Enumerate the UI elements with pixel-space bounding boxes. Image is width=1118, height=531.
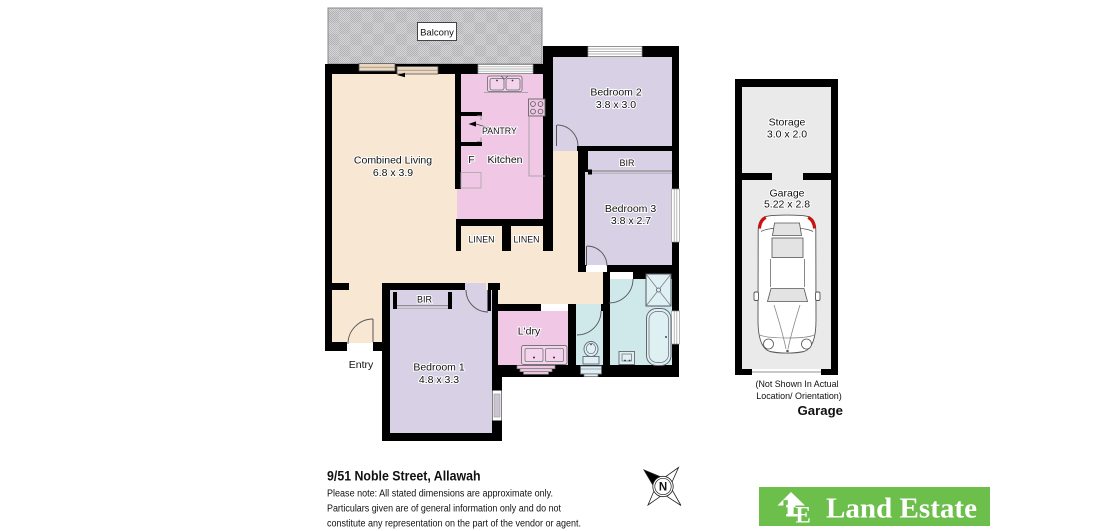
svg-text:N: N: [659, 482, 667, 494]
svg-text:E: E: [796, 503, 811, 528]
svg-text:5.22 x 2.8: 5.22 x 2.8: [764, 199, 810, 211]
svg-text:Entry: Entry: [349, 359, 374, 371]
svg-text:Bedroom 2: Bedroom 2: [590, 87, 642, 99]
svg-text:LINEN: LINEN: [469, 235, 495, 245]
svg-text:constitute any representation: constitute any representation on the par…: [327, 519, 581, 530]
svg-text:4.8 x 3.3: 4.8 x 3.3: [419, 374, 459, 386]
svg-text:3.8 x 3.0: 3.8 x 3.0: [596, 99, 636, 111]
svg-text:Location/ Orientation): Location/ Orientation): [756, 391, 842, 402]
svg-text:9/51 Noble Street, Allawah: 9/51 Noble Street, Allawah: [327, 469, 481, 484]
svg-text:Please note: All stated dimens: Please note: All stated dimensions are a…: [327, 489, 553, 500]
svg-text:Kitchen: Kitchen: [487, 154, 522, 166]
svg-text:F: F: [468, 154, 474, 166]
svg-text:LINEN: LINEN: [514, 235, 540, 245]
svg-text:BIR: BIR: [619, 158, 635, 168]
svg-text:Bedroom 1: Bedroom 1: [413, 362, 465, 374]
svg-text:Combined Living: Combined Living: [354, 155, 432, 167]
svg-text:BIR: BIR: [417, 295, 433, 305]
svg-text:Storage: Storage: [769, 117, 806, 129]
svg-text:3.8 x 2.7: 3.8 x 2.7: [611, 215, 651, 227]
svg-text:3.0 x 2.0: 3.0 x 2.0: [767, 129, 807, 141]
svg-text:Garage: Garage: [798, 403, 843, 418]
svg-text:Balcony: Balcony: [420, 28, 454, 39]
svg-text:6.8 x 3.9: 6.8 x 3.9: [373, 167, 413, 179]
svg-text:(Not Shown In Actual: (Not Shown In Actual: [756, 379, 839, 390]
svg-text:Bedroom 3: Bedroom 3: [605, 203, 657, 215]
svg-text:Land Estate: Land Estate: [826, 493, 977, 525]
svg-text:Particulars given are of gener: Particulars given are of general informa…: [327, 504, 561, 515]
svg-text:PANTRY: PANTRY: [482, 126, 517, 136]
svg-text:L'dry: L'dry: [518, 326, 541, 338]
